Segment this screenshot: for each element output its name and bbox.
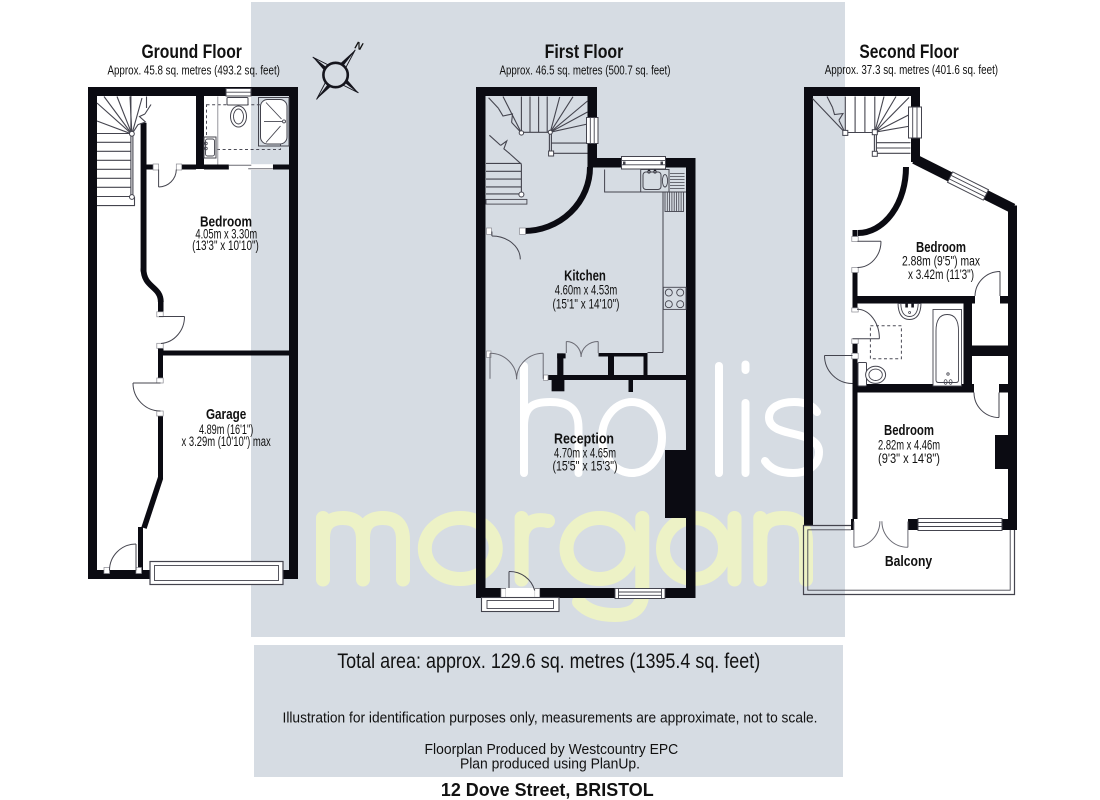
svg-text:x 3.42m (11'3"): x 3.42m (11'3") xyxy=(908,267,974,282)
svg-text:Second Floor: Second Floor xyxy=(859,42,959,63)
svg-text:Plan produced using PlanUp.: Plan produced using PlanUp. xyxy=(460,757,640,773)
svg-text:First Floor: First Floor xyxy=(545,42,624,63)
svg-text:4.60m x 4.53m: 4.60m x 4.53m xyxy=(555,283,617,298)
svg-text:Approx. 46.5 sq. metres (500.: Approx. 46.5 sq. metres (500.7 sq. feet) xyxy=(500,64,671,78)
svg-text:Bedroom: Bedroom xyxy=(884,422,934,439)
svg-text:Approx. 37.3 sq. metres (401.: Approx. 37.3 sq. metres (401.6 sq. feet) xyxy=(825,63,998,77)
svg-text:12 Dove Street, BRISTOL: 12 Dove Street, BRISTOL xyxy=(441,779,654,800)
svg-text:(15'1" x 14'10"): (15'1" x 14'10") xyxy=(553,297,620,312)
svg-text:x 3.29m (10'10") max: x 3.29m (10'10") max xyxy=(182,434,271,449)
svg-text:Balcony: Balcony xyxy=(885,553,933,570)
svg-text:Illustration for identificatio: Illustration for identification purposes… xyxy=(283,710,818,727)
svg-text:Ground Floor: Ground Floor xyxy=(141,42,242,63)
svg-text:(9'3" x 14'8"): (9'3" x 14'8") xyxy=(878,451,940,466)
svg-text:(13'3" x 10'10"): (13'3" x 10'10") xyxy=(192,238,259,253)
svg-text:Garage: Garage xyxy=(206,406,246,423)
svg-text:Total area: approx. 129.6 sq.: Total area: approx. 129.6 sq. metres (13… xyxy=(337,650,760,673)
svg-text:(15'5" x 15'3"): (15'5" x 15'3") xyxy=(553,459,618,474)
svg-text:Approx. 45.8 sq. metres (493.: Approx. 45.8 sq. metres (493.2 sq. feet) xyxy=(107,64,280,78)
